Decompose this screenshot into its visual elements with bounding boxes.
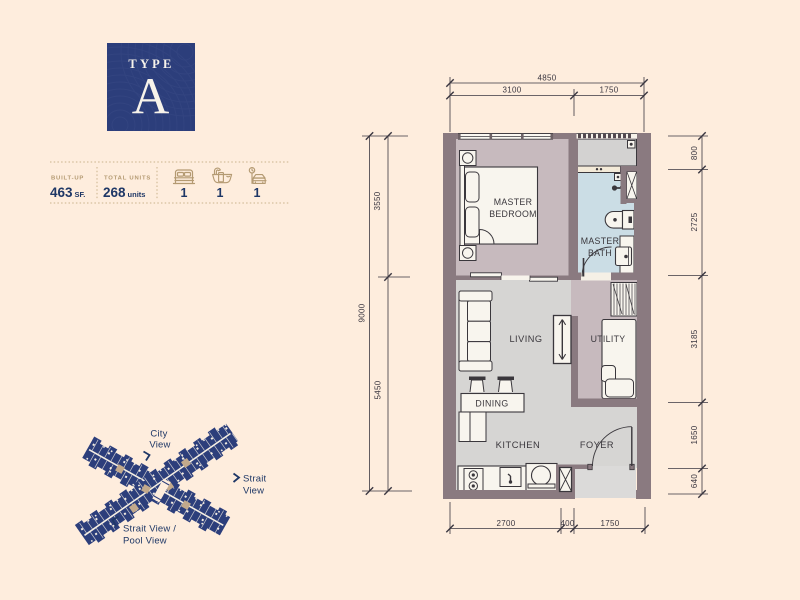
- svg-text:Pool View: Pool View: [123, 536, 167, 547]
- svg-text:800: 800: [690, 146, 699, 160]
- svg-text:3550: 3550: [373, 191, 382, 210]
- svg-text:BEDROOM: BEDROOM: [489, 209, 537, 219]
- svg-text:5450: 5450: [374, 380, 383, 399]
- svg-text:1: 1: [181, 186, 188, 200]
- svg-text:TOTAL UNITS: TOTAL UNITS: [104, 176, 151, 182]
- svg-text:City: City: [150, 429, 167, 440]
- svg-text:MASTER: MASTER: [494, 197, 532, 207]
- svg-text:400: 400: [560, 519, 574, 528]
- svg-text:LIVING: LIVING: [509, 334, 542, 344]
- svg-text:3100: 3100: [503, 86, 522, 95]
- svg-text:Strait: Strait: [243, 474, 267, 485]
- svg-text:1650: 1650: [690, 425, 699, 444]
- svg-text:A: A: [132, 69, 170, 126]
- svg-text:BUILT-UP: BUILT-UP: [51, 176, 84, 182]
- svg-text:640: 640: [690, 474, 699, 488]
- svg-text:1: 1: [217, 186, 224, 200]
- svg-text:2700: 2700: [497, 519, 516, 528]
- svg-text:FOYER: FOYER: [580, 440, 614, 450]
- svg-text:2725: 2725: [690, 212, 699, 231]
- svg-text:9000: 9000: [358, 303, 367, 322]
- svg-text:3185: 3185: [690, 329, 699, 348]
- svg-text:1750: 1750: [601, 519, 620, 528]
- svg-text:1: 1: [254, 186, 261, 200]
- svg-text:View: View: [149, 440, 170, 451]
- svg-text:MASTER: MASTER: [581, 236, 619, 246]
- svg-text:4850: 4850: [538, 74, 557, 83]
- svg-text:UTILITY: UTILITY: [591, 334, 626, 344]
- svg-text:View: View: [243, 486, 264, 497]
- svg-text:Strait View /: Strait View /: [123, 524, 176, 535]
- svg-text:KITCHEN: KITCHEN: [496, 439, 541, 450]
- svg-text:1750: 1750: [600, 86, 619, 95]
- svg-text:DINING: DINING: [475, 399, 508, 409]
